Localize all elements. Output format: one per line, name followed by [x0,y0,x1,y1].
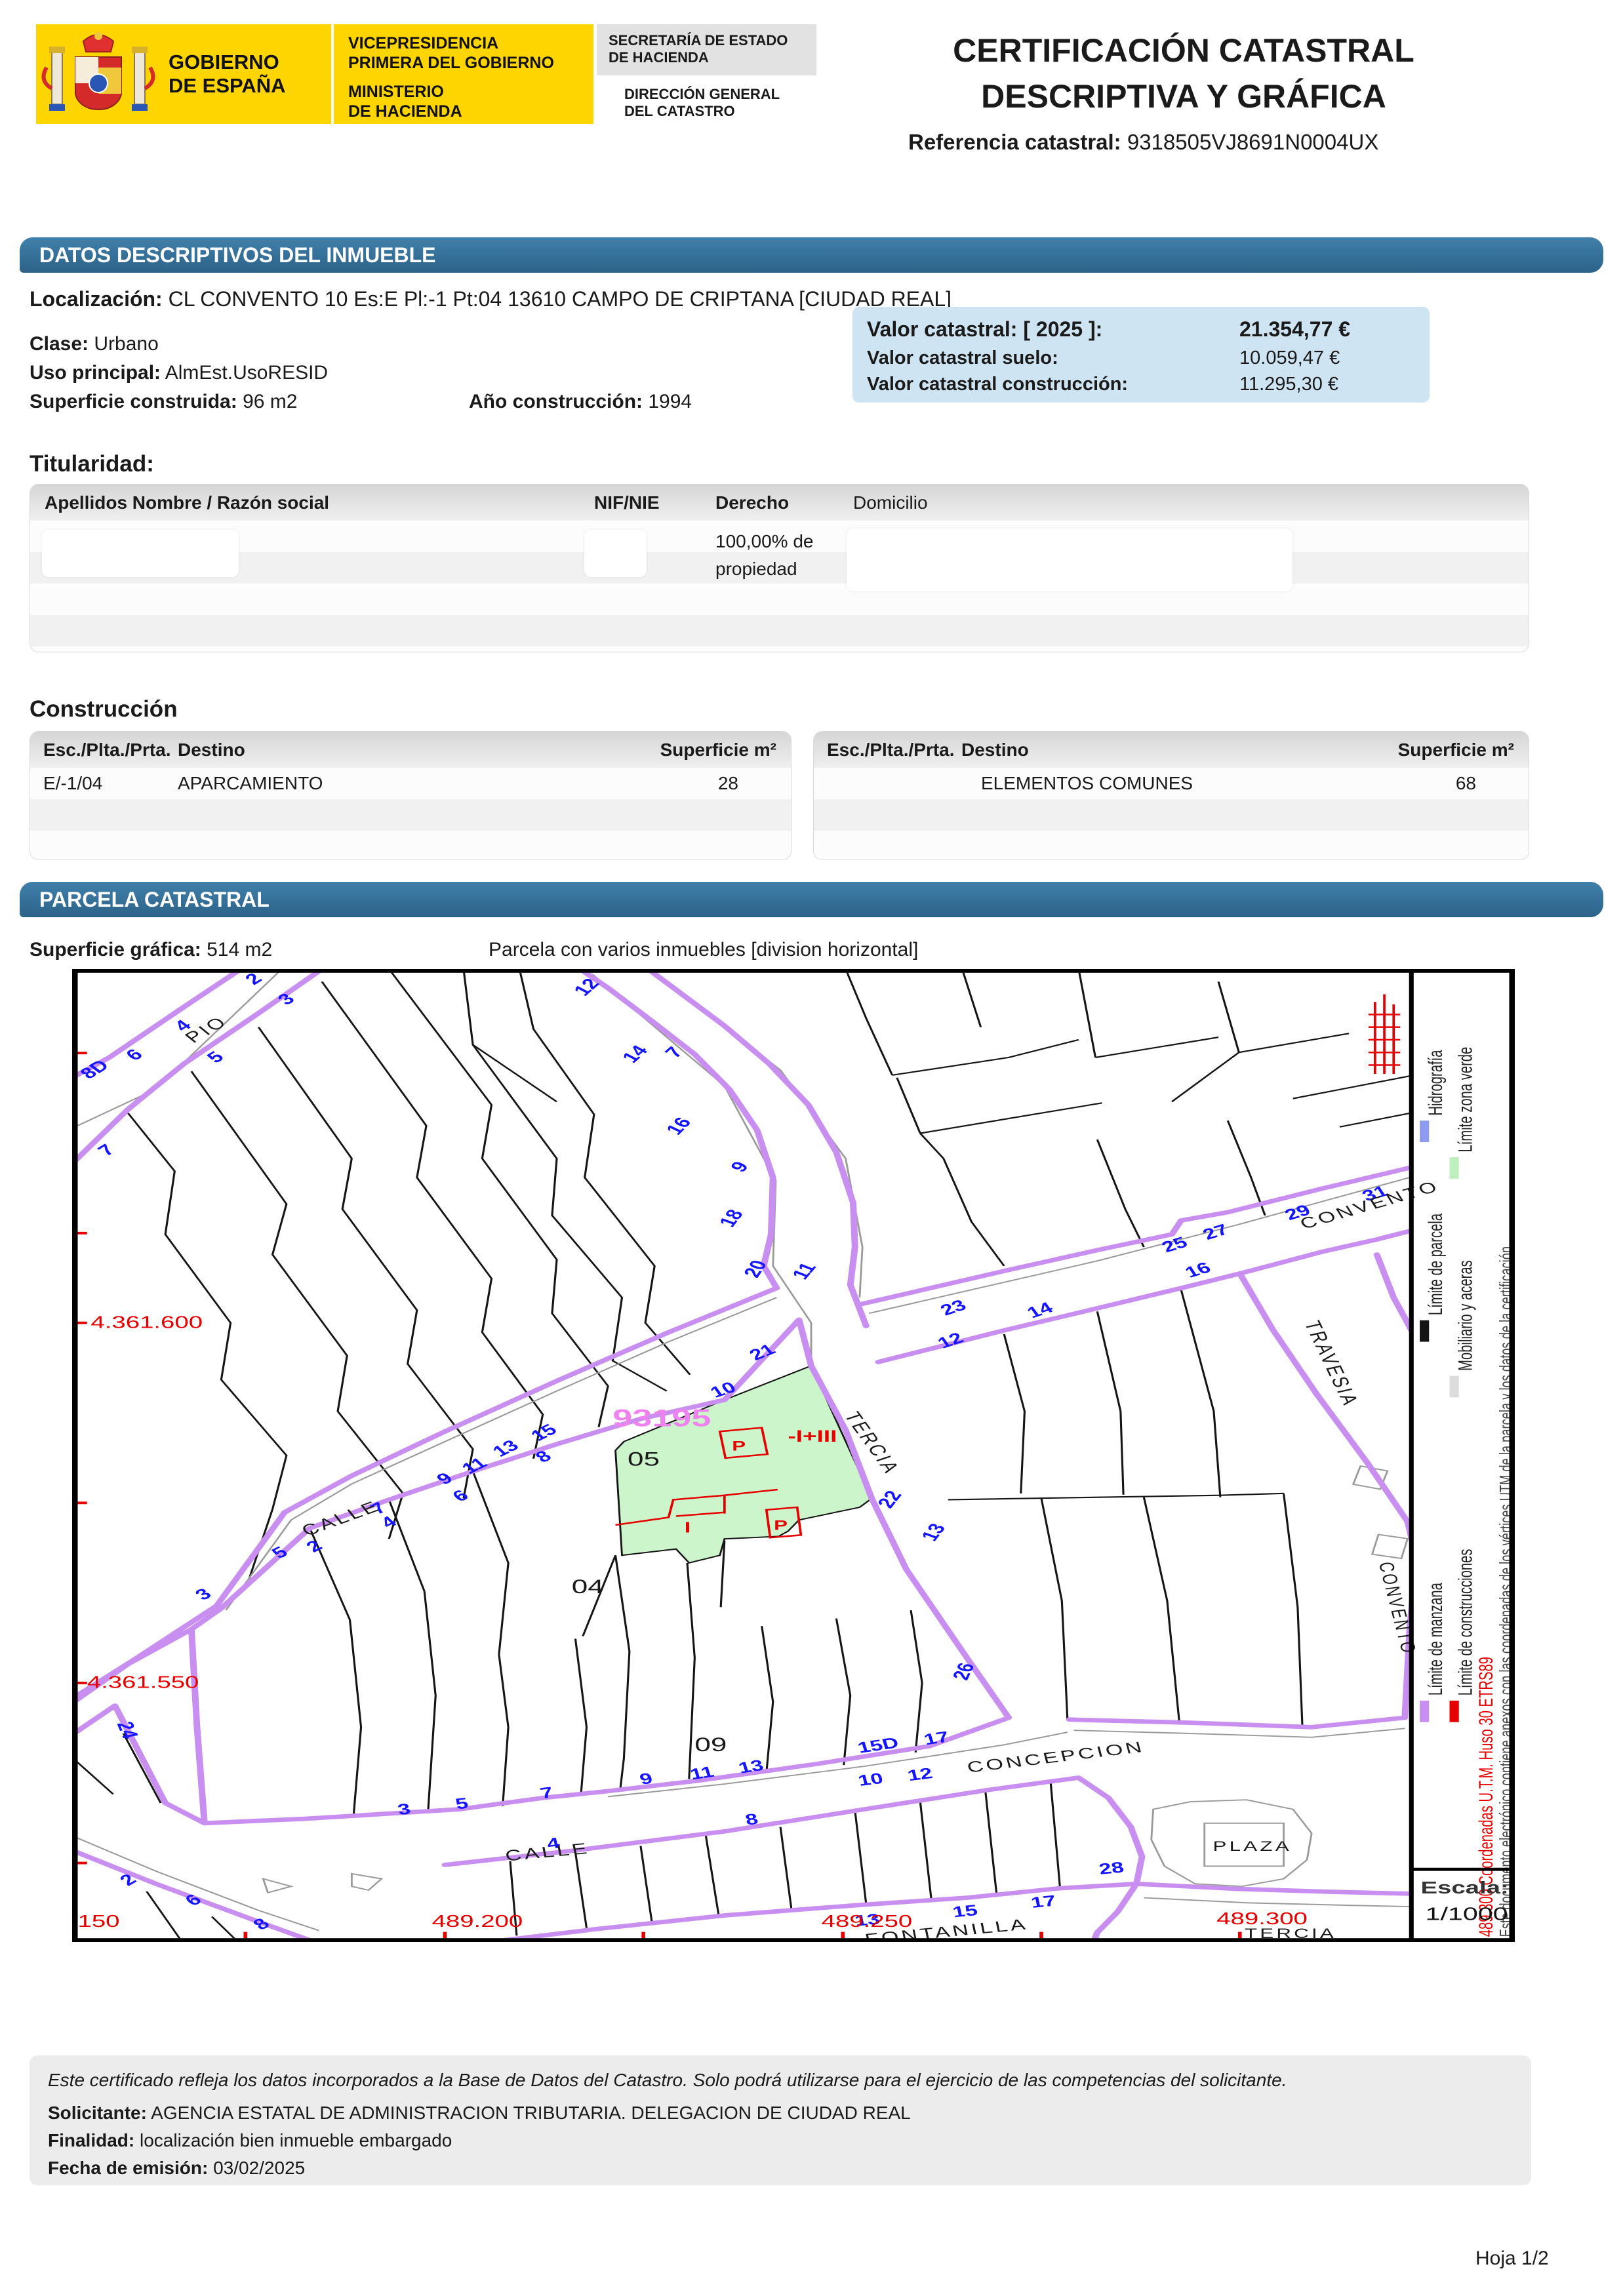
fecha-label: Fecha de emisión: [48,2158,208,2178]
gobierno-line1: GOBIERNO [169,50,286,74]
government-logo-block: GOBIERNO DE ESPAÑA VICEPRESIDENCIA PRIME… [36,24,593,124]
superficie-grafica-row: Superficie gráfica: 514 m2 [30,939,272,961]
anio-value: 1994 [648,391,692,412]
col-derecho: Derecho [715,485,789,521]
ministerio-line2: DE HACIENDA [348,102,593,121]
titularidad-body: 100,00% de propiedad [30,521,1529,652]
map-label-coord: 489.200 [432,1911,523,1930]
construccion-left-header: Esc./Plta./Prta. Destino Superficie m² [30,732,791,768]
map-label-leg: Límite de construcciones [1455,1549,1477,1695]
row-superficie: 28 [718,773,738,794]
clase-label: Clase: [30,333,89,355]
map-label-red: -I+III [788,1427,837,1446]
map-label-parcel: 09 [694,1733,727,1755]
vicepresidencia-line2: PRIMERA DEL GOBIERNO [348,53,593,73]
col-domicilio: Domicilio [853,485,928,521]
gobierno-line2: DE ESPAÑA [169,74,286,98]
col-destino: Destino [961,732,1029,768]
col-esc: Esc./Plta./Prta. [43,732,171,768]
legend-swatch-manzana [1420,1701,1429,1722]
map-label-num: 28 [1097,1859,1125,1878]
secretaria-block: SECRETARÍA DE ESTADO DE HACIENDA [597,24,816,75]
legend-swatch-hidrografia [1420,1120,1429,1142]
map-label-red: I [685,1520,691,1536]
legend-swatch-zona-verde [1450,1157,1459,1179]
valor-catastral-label: Valor catastral: [ 2025 ]: [867,317,1102,342]
map-label-red: P [732,1438,746,1454]
map-label-red: P [774,1518,788,1534]
construccion-heading: Construcción [30,696,178,722]
cadastral-map: 234658D7PIO12714169182011211022132623121… [72,969,1515,1942]
map-label-manzana: 93195 [612,1404,711,1431]
map-label-parcel: 04 [572,1575,604,1597]
col-destino: Destino [178,732,245,768]
construccion-right-header: Esc./Plta./Prta. Destino Superficie m² [814,732,1529,768]
anio-row: Año construcción: 1994 [469,391,692,413]
certificate-page: { "header": { "gobierno_line1": "GOBIERN… [0,0,1623,2296]
escala-value: 1/1000 [1426,1904,1508,1924]
map-label-coord: 489.300 [1216,1909,1308,1928]
clase-value: Urbano [94,333,158,355]
superficie-grafica-label: Superficie gráfica: [30,939,201,960]
map-label-num: 17 [1030,1893,1058,1912]
superficie-label: Superficie construida: [30,391,237,412]
map-label-leg: Límite zona verde [1455,1047,1477,1153]
direccion-line2: DEL CATASTRO [624,103,816,120]
ministerio-line1: MINISTERIO [348,82,593,102]
superficie-row: Superficie construida: 96 m2 [30,391,297,413]
map-label-leg: Límite de manzana [1425,1583,1447,1696]
map-label-num: 11 [688,1764,716,1783]
construccion-table-right: Esc./Plta./Prta. Destino Superficie m² E… [813,731,1529,860]
row-destino: APARCAMIENTO [178,773,323,794]
col-superficie: Superficie m² [1398,732,1514,768]
construccion-left-body: E/-1/04 APARCAMIENTO 28 [30,768,791,860]
localizacion-label: Localización: [30,287,163,311]
cadastral-map-svg: 234658D7PIO12714169182011211022132623121… [72,969,1515,1942]
map-label-leg: Límite de parcela [1425,1213,1447,1315]
superficie-grafica-value: 514 m2 [207,939,272,960]
document-title-line2: DESCRIPTIVA Y GRÁFICA [846,77,1521,115]
construccion-right-body: ELEMENTOS COMUNES 68 [814,768,1529,860]
solicitante-row: Solicitante: AGENCIA ESTATAL DE ADMINIST… [48,2103,911,2124]
map-label-num: 15 [951,1902,979,1921]
map-label-num: 13 [736,1757,766,1777]
localizacion-value: CL CONVENTO 10 Es:E Pl:-1 Pt:04 13610 CA… [169,287,952,311]
solicitante-label: Solicitante: [48,2103,147,2123]
finalidad-value: localización bien inmueble embargado [140,2130,452,2150]
construccion-table-left: Esc./Plta./Prta. Destino Superficie m² E… [30,731,791,860]
map-label-num: 10 [856,1770,885,1789]
clase-row: Clase: Urbano [30,333,159,355]
map-label-leg: Mobiliario y aceras [1455,1260,1477,1371]
finalidad-label: Finalidad: [48,2130,134,2150]
valor-construccion-value: 11.295,30 € [1239,374,1338,395]
titularidad-header-row: Apellidos Nombre / Razón social NIF/NIE … [30,485,1529,521]
redacted-nombre [42,530,239,577]
valor-construccion-label: Valor catastral construcción: [867,374,1128,395]
superficie-value: 96 m2 [243,391,297,412]
col-nif: NIF/NIE [594,485,660,521]
legend-swatch-construcciones [1450,1701,1459,1722]
col-esc: Esc./Plta./Prta. [827,732,955,768]
document-title-line1: CERTIFICACIÓN CATASTRAL [846,31,1521,69]
map-label-leg: Hidrografía [1425,1050,1447,1116]
direccion-line1: DIRECCIÓN GENERAL [624,86,816,103]
map-label-num: 17 [922,1729,952,1749]
direccion-block: DIRECCIÓN GENERAL DEL CATASTRO [597,81,816,124]
map-label-coord: 4.361.600 [90,1313,203,1332]
row-destino: ELEMENTOS COMUNES [981,773,1193,794]
referencia-value: 9318505VJ8691N0004UX [1127,130,1378,154]
derecho-line2: propiedad [715,559,797,580]
row-superficie: 68 [1456,773,1476,794]
escala-label: Escala: [1420,1878,1508,1897]
referencia-catastral: Referencia catastral: 9318505VJ8691N0004… [908,130,1378,155]
page-number: Hoja 1/2 [1475,2247,1549,2270]
derecho-line1: 100,00% de [715,531,813,552]
certificate-footer: Este certificado refleja los datos incor… [30,2055,1531,2185]
map-label-street: PLAZA [1213,1838,1292,1854]
row-esc: E/-1/04 [43,773,102,794]
fecha-value: 03/02/2025 [213,2158,305,2178]
uso-value: AlmEst.UsoRESID [165,362,328,384]
parcela-nota: Parcela con varios inmuebles [division h… [489,939,918,961]
col-nombre: Apellidos Nombre / Razón social [45,485,329,521]
map-label-coord: 150 [78,1911,120,1930]
anio-label: Año construcción: [469,391,643,412]
legend-swatch-mobiliario [1450,1376,1459,1398]
map-label-num: 12 [906,1765,934,1784]
spain-coat-of-arms-icon [36,28,161,120]
redacted-domicilio [847,528,1292,591]
localizacion-row: Localización: CL CONVENTO 10 Es:E Pl:-1 … [30,287,952,311]
legend-swatch-parcela [1420,1320,1429,1342]
fecha-row: Fecha de emisión: 03/02/2025 [48,2158,305,2179]
valor-suelo-value: 10.059,47 € [1239,347,1340,369]
uso-label: Uso principal: [30,362,161,384]
secretaria-line2: DE HACIENDA [609,49,816,66]
valor-catastral-value: 21.354,77 € [1239,317,1350,342]
titularidad-heading: Titularidad: [30,451,154,477]
redacted-nif [584,530,647,577]
valor-suelo-label: Valor catastral suelo: [867,347,1058,369]
gobierno-logo: GOBIERNO DE ESPAÑA [36,24,331,124]
vicepresidencia-line1: VICEPRESIDENCIA [348,33,593,53]
section-banner-parcela: PARCELA CATASTRAL [20,882,1603,917]
footer-aviso: Este certificado refleja los datos incor… [48,2070,1287,2091]
map-label-coord: 489.250 [822,1911,913,1930]
section-banner-datos: DATOS DESCRIPTIVOS DEL INMUEBLE [20,237,1603,273]
secretaria-line1: SECRETARÍA DE ESTADO [609,32,816,49]
referencia-label: Referencia catastral: [908,130,1121,154]
uso-row: Uso principal: AlmEst.UsoRESID [30,362,328,384]
map-label-coord: 4.361.550 [87,1673,199,1692]
solicitante-value: AGENCIA ESTATAL DE ADMINISTRACION TRIBUT… [151,2103,911,2123]
col-superficie: Superficie m² [660,732,776,768]
map-label-parcel: 05 [628,1448,660,1469]
titularidad-table: Apellidos Nombre / Razón social NIF/NIE … [30,484,1529,652]
finalidad-row: Finalidad: localización bien inmueble em… [48,2130,452,2151]
valor-catastral-box: Valor catastral: [ 2025 ]: 21.354,77 € V… [852,307,1430,403]
